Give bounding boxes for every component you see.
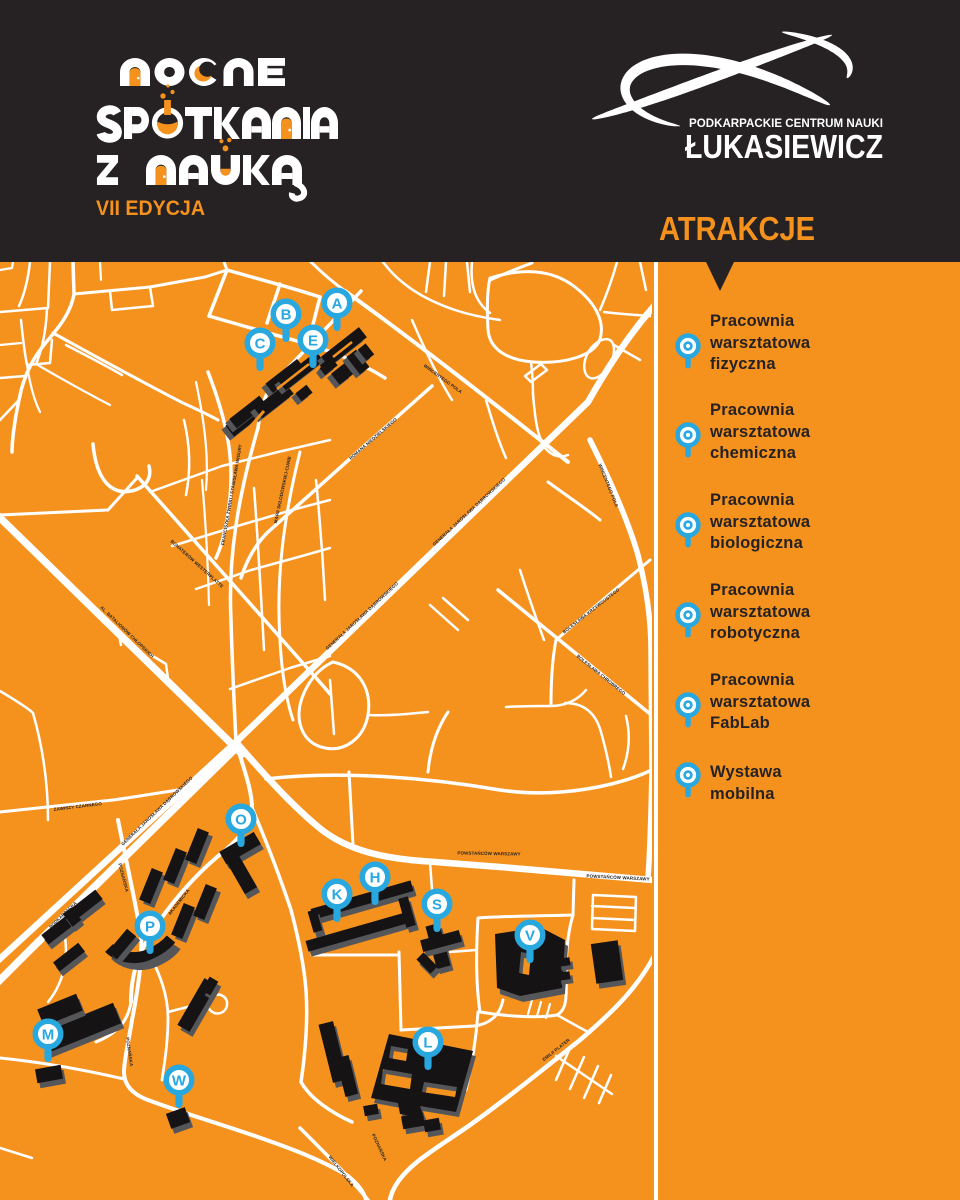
svg-text:WINCENTEGO POLA: WINCENTEGO POLA: [597, 463, 619, 508]
svg-text:O: O: [235, 812, 247, 829]
svg-text:AL. BATALIONÓW CHŁOPSKICH: AL. BATALIONÓW CHŁOPSKICH: [99, 604, 156, 659]
svg-text:WIELKOPOLSKA: WIELKOPOLSKA: [328, 1155, 356, 1188]
svg-text:BOLESŁAWA CHROBREGO: BOLESŁAWA CHROBREGO: [576, 654, 627, 697]
svg-text:E: E: [308, 333, 318, 350]
svg-text:ŁUKASIEWICZ: ŁUKASIEWICZ: [685, 128, 883, 165]
svg-text:K: K: [332, 887, 343, 904]
svg-text:M: M: [42, 1027, 55, 1044]
svg-text:BOLESŁAWA KRZYWOUSTEGO: BOLESŁAWA KRZYWOUSTEGO: [562, 587, 621, 635]
svg-text:GENERAŁA JAROSŁAWA DĄBROWSKIEG: GENERAŁA JAROSŁAWA DĄBROWSKIEGO: [120, 775, 194, 846]
svg-text:VII EDYCJA: VII EDYCJA: [96, 197, 205, 220]
svg-text:ROMANA NIEDZIELSKIEGO: ROMANA NIEDZIELSKIEGO: [348, 417, 398, 461]
svg-text:GENERAŁA JAROSŁAWA DĄBROWSKIEG: GENERAŁA JAROSŁAWA DĄBROWSKIEGO: [325, 581, 400, 651]
svg-text:W: W: [172, 1073, 187, 1090]
svg-text:C: C: [255, 336, 266, 353]
svg-text:H: H: [370, 870, 381, 887]
svg-text:ATRAKCJE: ATRAKCJE: [659, 210, 815, 247]
svg-text:GENERAŁA JAROSŁAWA DĄBROWSKIEG: GENERAŁA JAROSŁAWA DĄBROWSKIEGO: [432, 477, 507, 547]
svg-text:P: P: [145, 919, 155, 936]
svg-text:B: B: [281, 307, 292, 324]
svg-text:L: L: [423, 1035, 432, 1052]
svg-text:POZNAŃSKA: POZNAŃSKA: [371, 1132, 390, 1162]
svg-text:V: V: [525, 928, 535, 945]
svg-text:S: S: [432, 897, 442, 914]
svg-text:POWSTAŃCÓW WARSZAWY: POWSTAŃCÓW WARSZAWY: [457, 848, 520, 856]
